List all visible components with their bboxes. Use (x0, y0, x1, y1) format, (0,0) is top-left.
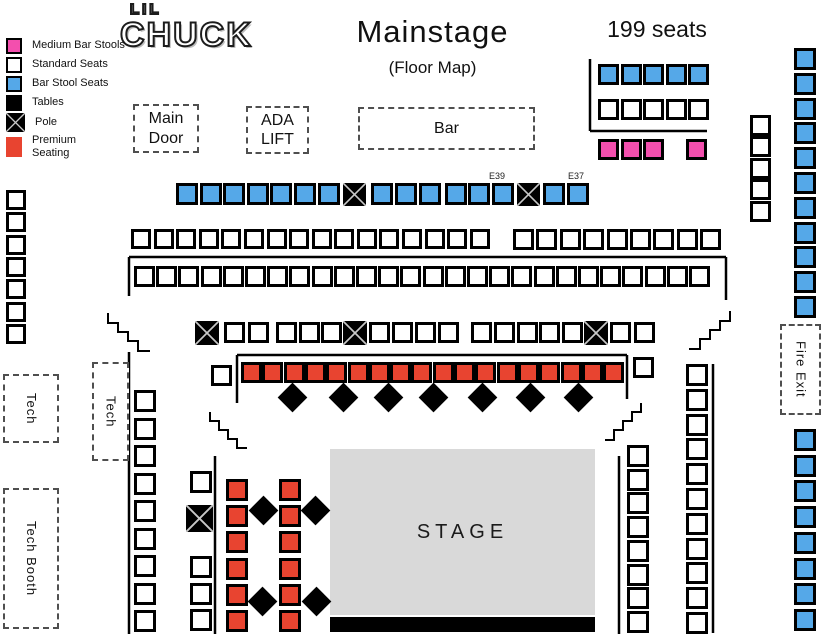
red-seat (348, 362, 369, 383)
white-seat (686, 438, 708, 460)
table-diamond (328, 382, 358, 412)
red-seat (411, 362, 432, 383)
blue-seat (794, 48, 816, 70)
white-seat (471, 322, 492, 343)
white-seat (489, 266, 510, 287)
table-diamond (418, 382, 448, 412)
blue-seat (794, 506, 816, 528)
red-seat (226, 505, 248, 527)
white-seat (423, 266, 444, 287)
white-seat (750, 158, 771, 179)
seat-number-label: E37 (568, 171, 584, 181)
red-seat (284, 362, 305, 383)
red-seat (226, 584, 248, 606)
tech-box-left: Tech (3, 374, 59, 443)
white-seat (634, 322, 655, 343)
white-seat (494, 322, 515, 343)
blue-seat (643, 64, 664, 85)
white-seat (536, 229, 557, 250)
red-seat (326, 362, 347, 383)
white-seat (134, 555, 156, 577)
legend-swatch-pole (6, 113, 25, 132)
pole-x-icon (343, 321, 367, 345)
white-seat (467, 266, 488, 287)
blue-seat (794, 147, 816, 169)
white-seat (607, 229, 628, 250)
red-seat (262, 362, 283, 383)
blue-seat (794, 197, 816, 219)
white-seat (700, 229, 721, 250)
blue-seat (247, 183, 269, 205)
blue-seat (176, 183, 198, 205)
white-seat (686, 612, 708, 634)
white-seat (134, 500, 156, 522)
white-seat (134, 390, 156, 412)
white-seat (667, 266, 688, 287)
legend-label: Premium Seating (32, 134, 76, 159)
legend-swatch-pink (6, 38, 22, 54)
legend-swatch-white (6, 57, 22, 73)
white-seat (621, 99, 642, 120)
pink-seat (643, 139, 664, 160)
logo-chuck-text: CHUCK (120, 18, 290, 52)
white-seat (627, 445, 649, 467)
pole-marker (195, 321, 219, 345)
blue-seat (794, 98, 816, 120)
seat-count-label: 199 seats (592, 16, 722, 43)
white-seat (750, 115, 771, 136)
blue-seat (200, 183, 222, 205)
legend-item: Bar Stool Seats (4, 75, 125, 92)
page-subtitle: (Floor Map) (300, 58, 565, 78)
pink-seat (686, 139, 707, 160)
white-seat (562, 322, 583, 343)
red-seat (305, 362, 326, 383)
blue-seat (621, 64, 642, 85)
white-seat (750, 136, 771, 157)
white-seat (598, 99, 619, 120)
pole-x-icon (584, 321, 608, 345)
white-seat (357, 229, 377, 249)
white-seat (267, 266, 288, 287)
white-seat (134, 473, 156, 495)
white-seat (470, 229, 490, 249)
legend-swatch-blue (6, 76, 22, 92)
table-diamond (467, 382, 497, 412)
white-seat (686, 538, 708, 560)
white-seat (224, 322, 245, 343)
white-seat (627, 492, 649, 514)
white-seat (369, 322, 390, 343)
white-seat (517, 322, 538, 343)
white-seat (134, 610, 156, 632)
white-seat (666, 99, 687, 120)
white-seat (190, 609, 212, 631)
venue-logo: LIL CHUCK (120, 2, 290, 52)
pole-x-icon (517, 183, 540, 206)
blue-seat (794, 480, 816, 502)
blue-seat (794, 222, 816, 244)
white-seat (289, 229, 309, 249)
white-seat (686, 463, 708, 485)
table-diamond (301, 586, 331, 616)
white-seat (750, 179, 771, 200)
blue-seat (371, 183, 393, 205)
red-seat (518, 362, 539, 383)
white-seat (627, 516, 649, 538)
white-seat (134, 583, 156, 605)
red-seat (475, 362, 496, 383)
red-seat (390, 362, 411, 383)
blue-seat (270, 183, 292, 205)
blue-seat (794, 271, 816, 293)
blue-seat (794, 296, 816, 318)
stage-area: STAGE (330, 449, 595, 615)
pole-marker (186, 505, 213, 532)
red-seat (226, 479, 248, 501)
white-seat (334, 266, 355, 287)
pole-marker (517, 183, 540, 206)
white-seat (750, 201, 771, 222)
blue-seat (794, 246, 816, 268)
white-seat (276, 322, 297, 343)
red-seat (369, 362, 390, 383)
white-seat (688, 99, 709, 120)
blue-seat (794, 429, 816, 451)
red-seat (226, 558, 248, 580)
white-seat (686, 364, 708, 386)
legend-label: Bar Stool Seats (32, 77, 108, 90)
blue-seat (223, 183, 245, 205)
white-seat (6, 212, 26, 232)
blue-seat (794, 532, 816, 554)
white-seat (627, 587, 649, 609)
pink-seat (621, 139, 642, 160)
white-seat (6, 190, 26, 210)
white-seat (190, 556, 212, 578)
white-seat (402, 229, 422, 249)
white-seat (686, 587, 708, 609)
floor-map-canvas: LIL CHUCK Mainstage (Floor Map) 199 seat… (0, 0, 828, 636)
white-seat (134, 418, 156, 440)
seat-number-label: E39 (489, 171, 505, 181)
blue-seat (468, 183, 490, 205)
page-title: Mainstage (300, 14, 565, 50)
white-seat (134, 528, 156, 550)
main-door-box: Main Door (133, 104, 199, 153)
white-seat (176, 229, 196, 249)
red-seat (454, 362, 475, 383)
blue-seat (567, 183, 589, 205)
red-seat (226, 531, 248, 553)
table-diamond (373, 382, 403, 412)
white-seat (560, 229, 581, 250)
legend-item: Medium Bar Stools (4, 37, 125, 54)
white-seat (686, 414, 708, 436)
blue-seat (598, 64, 619, 85)
white-seat (400, 266, 421, 287)
red-seat (279, 505, 301, 527)
pole-x-icon (186, 505, 213, 532)
table-diamond (248, 495, 278, 525)
red-seat (279, 584, 301, 606)
blue-seat (666, 64, 687, 85)
white-seat (513, 229, 534, 250)
white-seat (156, 266, 177, 287)
white-seat (248, 322, 269, 343)
tech-booth-box: Tech Booth (3, 488, 59, 629)
red-seat (241, 362, 262, 383)
red-seat (561, 362, 582, 383)
white-seat (267, 229, 287, 249)
red-seat (226, 610, 248, 632)
white-seat (653, 229, 674, 250)
legend-label: Medium Bar Stools (32, 39, 125, 52)
red-seat (279, 479, 301, 501)
white-seat (556, 266, 577, 287)
red-seat (279, 610, 301, 632)
legend-item: Premium Seating (4, 134, 125, 159)
blue-seat (794, 122, 816, 144)
white-seat (221, 229, 241, 249)
white-seat (6, 235, 26, 255)
white-seat (356, 266, 377, 287)
white-seat (511, 266, 532, 287)
white-seat (578, 266, 599, 287)
table-diamond (300, 495, 330, 525)
white-seat (134, 266, 155, 287)
white-seat (201, 266, 222, 287)
ada-lift-box: ADA LIFT (246, 106, 309, 154)
white-seat (534, 266, 555, 287)
red-seat (497, 362, 518, 383)
pole-marker (343, 321, 367, 345)
legend-label: Tables (32, 96, 64, 109)
white-seat (677, 229, 698, 250)
white-seat (178, 266, 199, 287)
blue-seat (445, 183, 467, 205)
white-seat (622, 266, 643, 287)
white-seat (610, 322, 631, 343)
tech-box-mid: Tech (92, 362, 129, 461)
white-seat (6, 324, 26, 344)
white-seat (6, 302, 26, 322)
white-seat (245, 266, 266, 287)
pink-seat (598, 139, 619, 160)
table-diamond (247, 586, 277, 616)
blue-seat (794, 583, 816, 605)
white-seat (438, 322, 459, 343)
red-seat (603, 362, 624, 383)
pole-x-icon (343, 183, 366, 206)
white-seat (154, 229, 174, 249)
table-diamond (277, 382, 307, 412)
white-seat (299, 322, 320, 343)
table-diamond (563, 382, 593, 412)
white-seat (378, 266, 399, 287)
stage-label: STAGE (417, 521, 508, 544)
blue-seat (794, 558, 816, 580)
white-seat (6, 279, 26, 299)
red-seat (433, 362, 454, 383)
white-seat (289, 266, 310, 287)
white-seat (633, 357, 654, 378)
blue-seat (395, 183, 417, 205)
white-seat (686, 513, 708, 535)
legend-label: Standard Seats (32, 58, 108, 71)
white-seat (425, 229, 445, 249)
blue-seat (688, 64, 709, 85)
pole-marker (584, 321, 608, 345)
legend-label: Pole (35, 116, 57, 129)
legend-swatch-red (6, 137, 22, 157)
red-seat (279, 531, 301, 553)
red-seat (279, 558, 301, 580)
white-seat (244, 229, 264, 249)
white-seat (643, 99, 664, 120)
white-seat (223, 266, 244, 287)
white-seat (627, 469, 649, 491)
legend-item: Standard Seats (4, 56, 125, 73)
legend-item: Tables (4, 94, 125, 111)
white-seat (630, 229, 651, 250)
blue-seat (419, 183, 441, 205)
legend-swatch-table (6, 95, 22, 111)
white-seat (134, 445, 156, 467)
white-seat (190, 583, 212, 605)
red-seat (582, 362, 603, 383)
white-seat (627, 564, 649, 586)
white-seat (627, 540, 649, 562)
blue-seat (492, 183, 514, 205)
white-seat (539, 322, 560, 343)
blue-seat (318, 183, 340, 205)
white-seat (686, 562, 708, 584)
pole-marker (343, 183, 366, 206)
stage-front-edge (330, 617, 595, 632)
white-seat (199, 229, 219, 249)
white-seat (689, 266, 710, 287)
white-seat (686, 389, 708, 411)
pole-x-icon (195, 321, 219, 345)
white-seat (627, 611, 649, 633)
white-seat (6, 257, 26, 277)
white-seat (312, 229, 332, 249)
white-seat (211, 365, 232, 386)
white-seat (415, 322, 436, 343)
blue-seat (794, 73, 816, 95)
logo-lil-text: LIL (130, 2, 290, 17)
white-seat (379, 229, 399, 249)
white-seat (445, 266, 466, 287)
white-seat (686, 488, 708, 510)
blue-seat (294, 183, 316, 205)
white-seat (447, 229, 467, 249)
white-seat (583, 229, 604, 250)
table-diamond (515, 382, 545, 412)
white-seat (334, 229, 354, 249)
legend-item: Pole (4, 113, 125, 132)
fire-exit-box: Fire Exit (780, 324, 821, 415)
legend: Medium Bar StoolsStandard SeatsBar Stool… (4, 37, 125, 159)
red-seat (539, 362, 560, 383)
blue-seat (794, 172, 816, 194)
blue-seat (794, 455, 816, 477)
pole-x-icon (6, 113, 25, 132)
bar-box: Bar (358, 107, 535, 150)
blue-seat (543, 183, 565, 205)
white-seat (600, 266, 621, 287)
white-seat (321, 322, 342, 343)
white-seat (190, 471, 212, 493)
white-seat (312, 266, 333, 287)
white-seat (645, 266, 666, 287)
white-seat (131, 229, 151, 249)
white-seat (392, 322, 413, 343)
blue-seat (794, 609, 816, 631)
